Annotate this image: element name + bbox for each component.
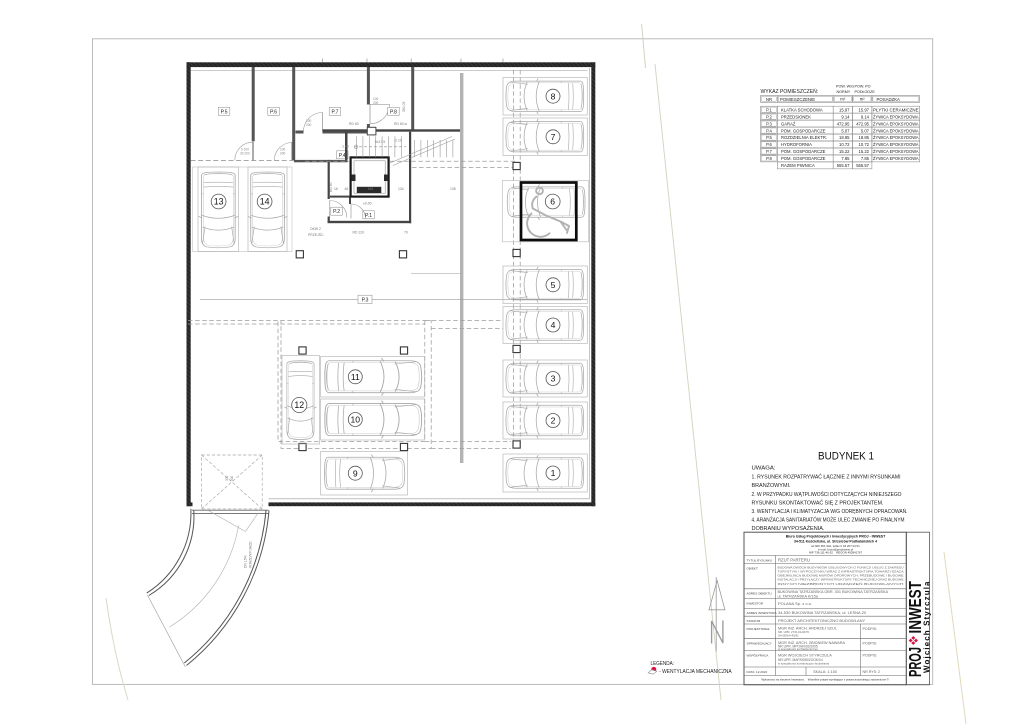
svg-text:138: 138 [450,187,456,191]
svg-text:-1.05: -1.05 [341,145,349,149]
svg-text:10.72: 10.72 [839,142,850,147]
svg-text:NR RYS: 2: NR RYS: 2 [863,670,881,674]
svg-text:POSADZKA: POSADZKA [877,97,901,102]
svg-text:RD 60: RD 60 [349,122,359,126]
svg-text:ADRES OBIEKTU: ADRES OBIEKTU [747,592,772,596]
svg-text:Biuro Usług Projektowych i Inw: Biuro Usług Projektowych i Inwestycyjnyc… [786,535,886,539]
svg-text:GARAŻ: GARAŻ [781,121,796,126]
svg-text:555.57: 555.57 [856,163,869,168]
svg-text:472.95: 472.95 [856,121,869,126]
svg-text:15.22: 15.22 [859,149,870,154]
svg-text:ROZDZIELNIA ELEKTR.: ROZDZIELNIA ELEKTR. [781,135,827,140]
svg-text:15.22: 15.22 [839,149,850,154]
svg-text:200: 200 [306,123,312,127]
svg-text:6: 6 [550,197,555,207]
svg-text:PODPIS:: PODPIS: [863,627,878,631]
svg-text:NORMY: NORMY [837,90,851,94]
svg-text:PROJEKTOWAŁ: PROJEKTOWAŁ [747,627,770,631]
svg-text:5.07: 5.07 [841,128,850,133]
svg-text:9: 9 [353,468,358,478]
svg-text:500: 500 [230,475,234,481]
svg-text:OKW 2: OKW 2 [310,227,321,231]
svg-text:ŻYWICA EPOKSYDOWA: ŻYWICA EPOKSYDOWA [873,121,919,126]
svg-text:m²: m² [860,96,866,101]
svg-text:7.85: 7.85 [841,156,850,161]
svg-text:POM. GOSPODARCZE: POM. GOSPODARCZE [781,156,826,161]
svg-text:±0.00: ±0.00 [363,202,372,206]
svg-text:RD 120: RD 120 [353,231,365,235]
svg-text:16: 16 [334,187,338,191]
svg-text:P.1: P.1 [365,213,372,219]
svg-text:PODPIS:: PODPIS: [863,641,878,645]
svg-text:P.4: P.4 [766,128,772,133]
svg-text:WSPÓŁPRACA: WSPÓŁPRACA [747,653,770,658]
svg-text:13: 13 [214,197,224,207]
svg-text:POLANA Sp. z o.o.: POLANA Sp. z o.o. [778,601,812,606]
svg-text:RD 60: RD 60 [329,182,333,192]
svg-text:165: 165 [368,187,374,191]
svg-text:34-511 Kościelisko, ul. Strzel: 34-511 Kościelisko, ul. Strzelców Podhal… [794,539,877,543]
svg-text:P.4: P.4 [339,153,346,159]
svg-text:LEGENDA:: LEGENDA: [651,661,675,667]
svg-text:KLATKA SCHODOWA: KLATKA SCHODOWA [781,107,823,112]
svg-text:NIP 736-111-46-52 REGON 492: NIP 736-111-46-52 REGON 492841767 [809,551,863,555]
svg-text:18.85: 18.85 [839,135,850,140]
svg-text:PROJEKT ARCHITEKTONICZNO BUDOW: PROJEKT ARCHITEKTONICZNO BUDOWLANY [778,618,866,623]
svg-text:POW. PO: POW. PO [855,85,871,89]
svg-text:DN 15%: DN 15% [244,555,248,568]
svg-text:P.5: P.5 [766,135,772,140]
svg-text:w specjalności architektoniczn: w specjalności architektonicznej [778,647,818,651]
svg-text:7.85: 7.85 [861,156,870,161]
svg-text:PŁYTKI CERAMICZNE: PŁYTKI CERAMICZNE [873,107,919,112]
svg-text:TYTUŁ RYSUNKU: TYTUŁ RYSUNKU [747,558,773,562]
svg-text:15.97: 15.97 [859,107,870,112]
svg-text:P.6: P.6 [766,142,772,147]
svg-text:46: 46 [345,187,349,191]
svg-text:30 200: 30 200 [240,152,250,156]
svg-text:3: 3 [551,374,556,384]
svg-text:-2.10: -2.10 [394,139,402,143]
svg-text:PRZEDSIONEK: PRZEDSIONEK [781,114,811,119]
svg-text:8: 8 [551,91,556,101]
svg-text:BRANŻOWYMI.: BRANŻOWYMI. [752,482,791,489]
svg-text:7: 7 [551,132,556,142]
svg-text:RD 60 w: RD 60 w [394,122,408,126]
svg-text:WYKAZ POMIESZCZEŃ:: WYKAZ POMIESZCZEŃ: [761,88,819,95]
svg-text:PODPIS:: PODPIS: [863,654,878,658]
svg-text:POW. W/G: POW. W/G [836,85,854,89]
svg-text:OBIEKT: OBIEKT [747,567,758,571]
svg-text:ADRES INWESTORA: ADRES INWESTORA [747,611,778,615]
svg-text:2: 2 [551,416,556,426]
svg-text:NR: NR [766,97,772,102]
svg-text:P.6: P.6 [270,109,277,115]
svg-text:P.8: P.8 [390,109,397,115]
svg-text:200: 200 [280,152,286,156]
svg-text:HYDROFORNIA: HYDROFORNIA [781,142,812,147]
svg-text:4: 4 [551,320,556,330]
svg-text:555.57: 555.57 [837,163,850,168]
svg-text:PRZEJŚC.: PRZEJŚC. [308,232,324,237]
svg-text:w specjalności konstrukcyjno-b: w specjalności konstrukcyjno-budowlanej [778,662,829,666]
svg-text:SKALA: 1:100: SKALA: 1:100 [813,670,837,674]
svg-text:BUDYNEK 1: BUDYNEK 1 [818,451,874,463]
svg-text:34-530 BUKOWINA TATRZAŃSKA, ul: 34-530 BUKOWINA TATRZAŃSKA, ul. LEŚNA 20 [778,610,867,615]
svg-text:SPRAWDZAJĄCY: SPRAWDZAJĄCY [747,641,772,645]
svg-text:ul. TATRZAŃSKA K/15a: ul. TATRZAŃSKA K/15a [778,595,819,599]
svg-text:300: 300 [225,475,229,481]
svg-text:P.8: P.8 [766,156,772,161]
svg-text:ŻYWICA EPOKSYDOWA: ŻYWICA EPOKSYDOWA [873,114,919,119]
svg-text:18.85: 18.85 [859,135,870,140]
svg-text:ŻYWICA EPOKSYDOWA: ŻYWICA EPOKSYDOWA [873,135,919,140]
svg-text:UWAGA:: UWAGA: [752,465,777,471]
svg-text:m²: m² [840,96,846,101]
svg-text:PODŁODZE: PODŁODZE [855,90,876,94]
svg-text:Wykonano na zlecenie Inwestora: Wykonano na zlecenie Inwestora. Wszelkie… [761,678,889,682]
svg-text:P.3: P.3 [362,297,369,303]
svg-text:P.2: P.2 [333,209,340,215]
svg-text:RYSUNKU SKONTAKTOWAĆ SIĘ Z PRO: RYSUNKU SKONTAKTOWAĆ SIĘ Z PROJEKTANTEM. [752,499,884,506]
svg-text:WJAZD/WYJAZD: WJAZD/WYJAZD [249,541,253,568]
svg-text:P.5: P.5 [221,109,228,115]
svg-text:ŻYWICA EPOKSYDOWA: ŻYWICA EPOKSYDOWA [873,142,919,147]
svg-text:10.72: 10.72 [859,142,870,147]
svg-text:1: 1 [551,468,556,478]
svg-text:5.07: 5.07 [861,128,870,133]
svg-text:12: 12 [294,400,304,410]
svg-text:5: 5 [551,280,556,290]
svg-text:GA/JEN/A-45/91: GA/JEN/A-45/91 [778,633,799,637]
svg-text:INNYCH NIEZBĘDNYCH URZĄDZEŃ BU: INNYCH NIEZBĘDNYCH URZĄDZEŃ BUDOWLANYCH [778,582,904,586]
svg-text:Wojciech Styrczula: Wojciech Styrczula [923,580,932,673]
svg-text:472.95: 472.95 [837,121,850,126]
svg-text:POM. GOSPODARCZE: POM. GOSPODARCZE [781,149,826,154]
svg-text:POM. GOSPODARCZE: POM. GOSPODARCZE [781,128,826,133]
svg-text:- WENTYLACJA MECHANICZNA: - WENTYLACJA MECHANICZNA [659,669,732,675]
svg-text:15.97: 15.97 [839,107,850,112]
svg-text:10: 10 [351,415,361,425]
svg-text:RAZEM PIWNICA: RAZEM PIWNICA [781,163,815,168]
svg-text:P.7: P.7 [332,109,339,115]
svg-text:P.2: P.2 [766,114,772,119]
svg-text:1. RYSUNEK ROZPATRYWAĆ ŁĄCZNIE: 1. RYSUNEK ROZPATRYWAĆ ŁĄCZNIE Z INNYMI … [752,474,901,481]
svg-text:DOBRANIU WYPOSAŻENIA.: DOBRANIU WYPOSAŻENIA. [752,525,825,532]
svg-text:POMIESZCZENIE: POMIESZCZENIE [780,97,815,102]
svg-text:11: 11 [351,372,360,382]
svg-text:14: 14 [260,197,270,207]
svg-text:70: 70 [404,231,408,235]
svg-text:P.1: P.1 [766,107,772,112]
svg-text:P.3: P.3 [766,121,772,126]
svg-text:9.14: 9.14 [841,114,850,119]
svg-text:2. W PRZYPADKU WĄTPLIWOŚCI DOT: 2. W PRZYPADKU WĄTPLIWOŚCI DOTYCZĄCYCH N… [752,490,902,498]
svg-text:200: 200 [373,101,379,105]
svg-text:ŻYWICA EPOKSYDOWA: ŻYWICA EPOKSYDOWA [873,149,919,154]
svg-text:P.7: P.7 [766,149,772,154]
svg-text:STADIUM: STADIUM [747,619,761,623]
svg-text:ŻYWICA EPOKSYDOWA: ŻYWICA EPOKSYDOWA [873,156,919,161]
svg-text:9x17.5: 9x17.5 [375,140,385,144]
svg-text:9.14: 9.14 [861,114,870,119]
svg-text:INWESTOR: INWESTOR [747,601,764,605]
svg-text:134: 134 [398,187,404,191]
svg-text:BUKOWINA TATRZAŃSKA OBR. 301 B: BUKOWINA TATRZAŃSKA OBR. 301 BUKOWINA TA… [778,590,889,594]
svg-text:ŻYWICA EPOKSYDOWA: ŻYWICA EPOKSYDOWA [873,128,919,133]
svg-text:360,05: 360,05 [402,102,406,112]
svg-text:4. ARANŻACJA SANITARIATÓW MOŻE: 4. ARANŻACJA SANITARIATÓW MOŻE ULEC ZMIA… [752,517,905,524]
svg-text:DATA: 12.2022: DATA: 12.2022 [747,670,768,674]
svg-text:RZUT PARTERU: RZUT PARTERU [778,558,810,563]
svg-text:3. WENTYLACJA I KLIMATYZACJA W: 3. WENTYLACJA I KLIMATYZACJA W/G ODRĘBNY… [752,508,908,515]
